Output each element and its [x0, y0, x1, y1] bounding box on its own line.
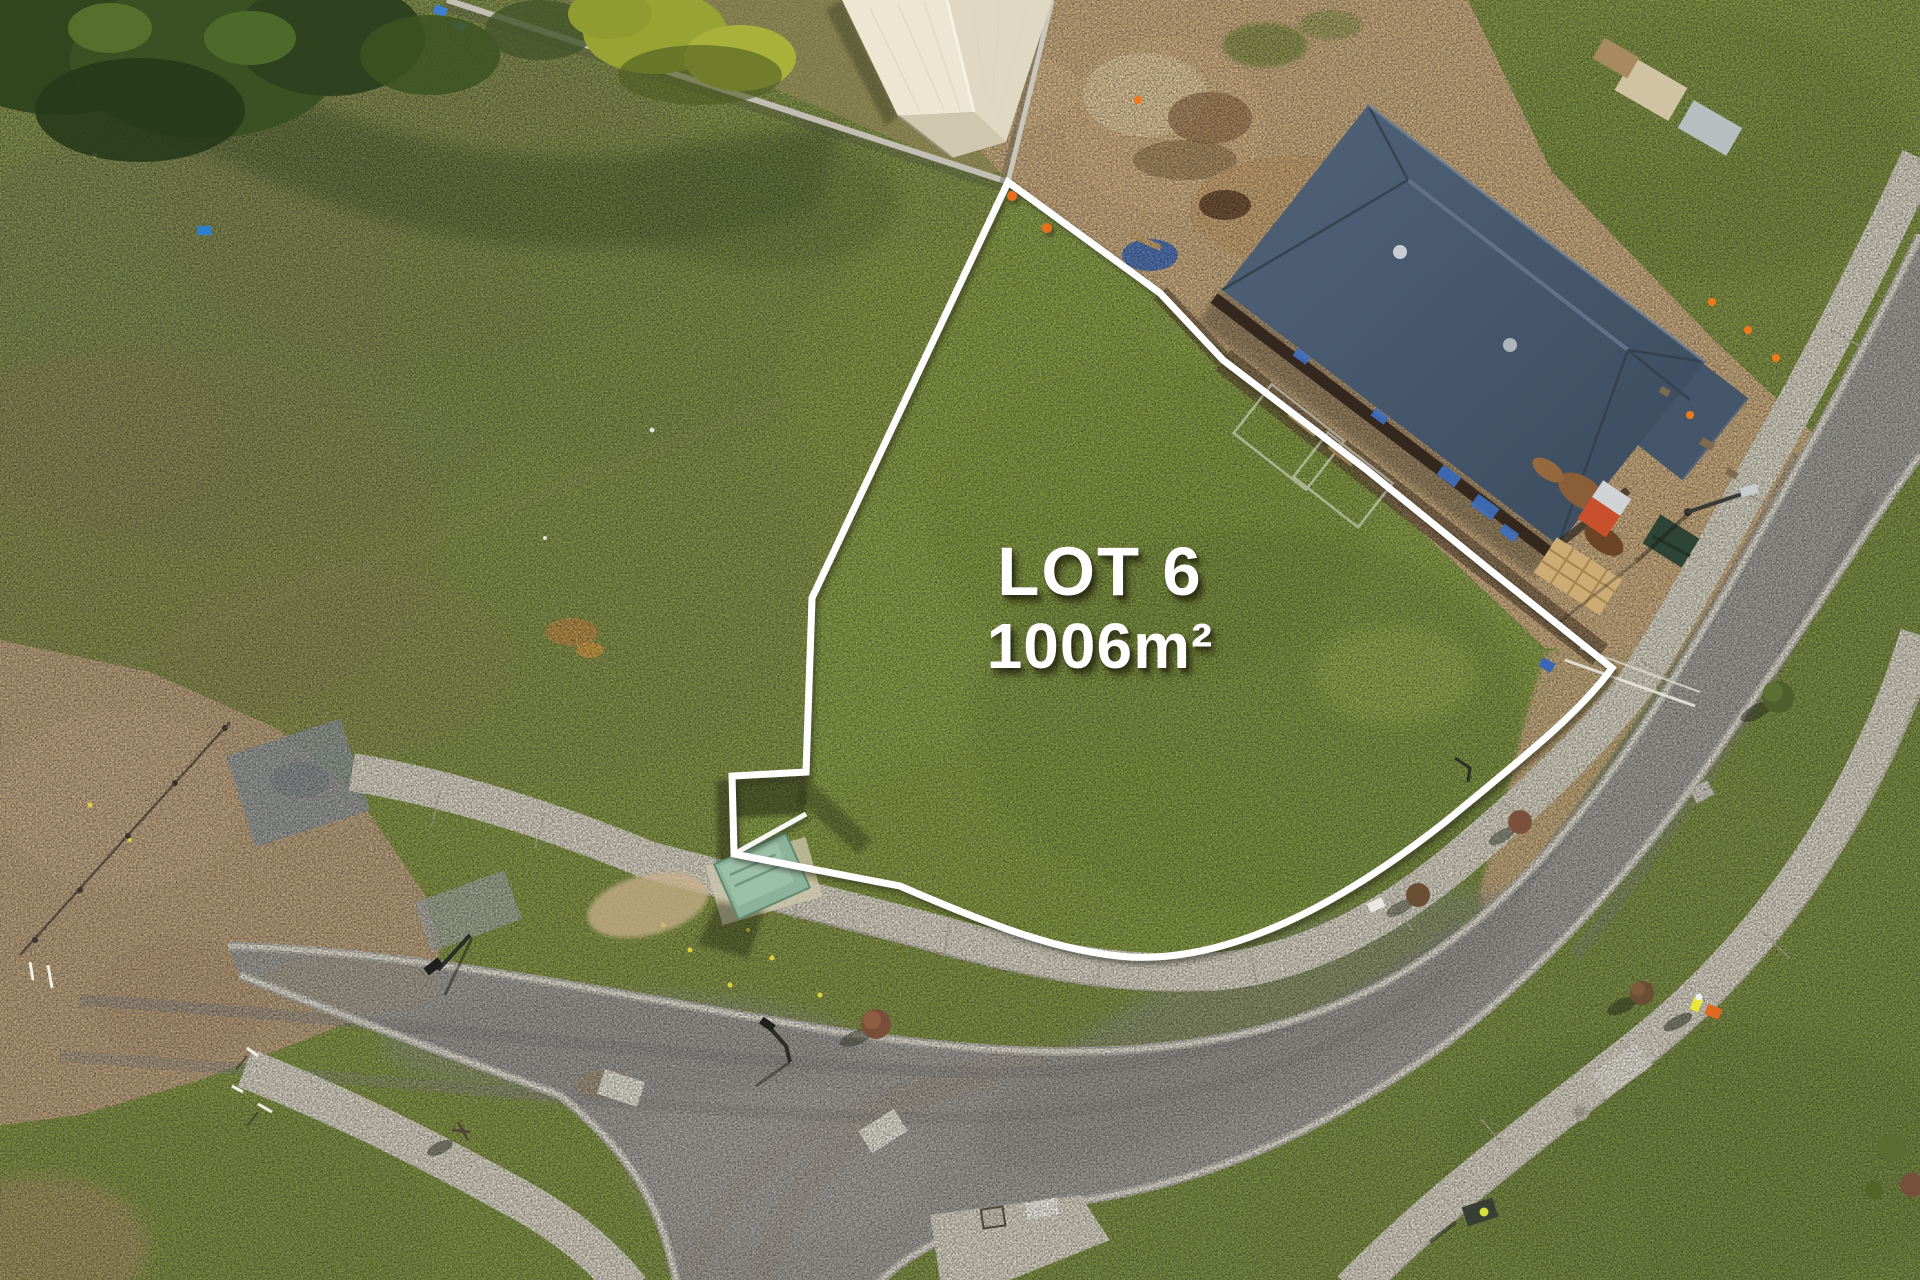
- lot-label: LOT 6: [987, 534, 1214, 610]
- photo-canvas: [0, 0, 1920, 1280]
- aerial-photo: LOT 6 1006m²: [0, 0, 1920, 1280]
- photo-grain-light: [0, 0, 1920, 1280]
- lot-area: 1006m²: [987, 610, 1214, 682]
- lot-info-overlay: LOT 6 1006m²: [987, 534, 1214, 682]
